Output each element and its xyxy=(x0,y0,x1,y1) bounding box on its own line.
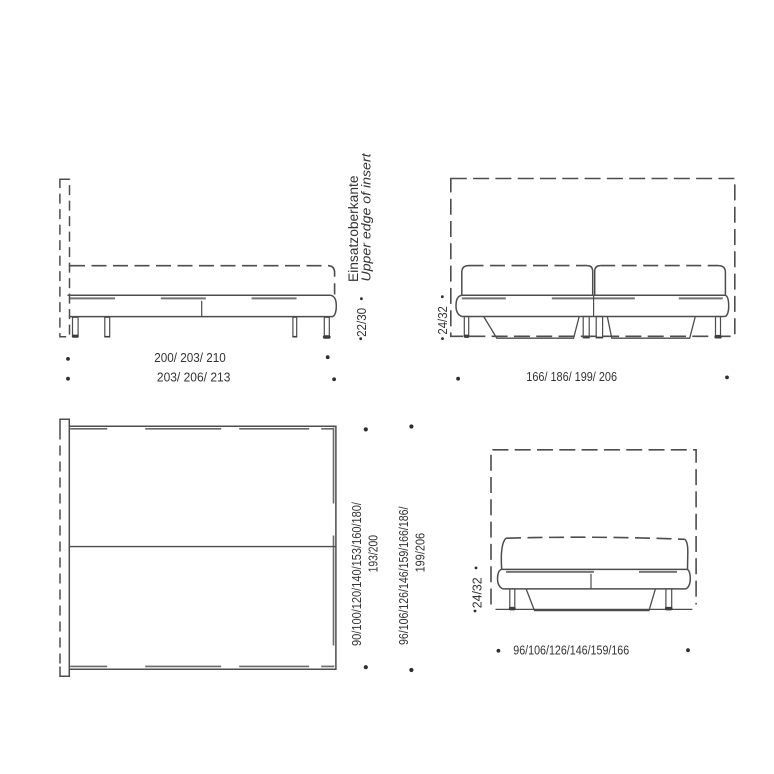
svg-text:193/200: 193/200 xyxy=(366,535,381,572)
svg-text:203/ 206/ 213: 203/ 206/ 213 xyxy=(157,369,231,384)
svg-text:Upper edge of insert: Upper edge of insert xyxy=(359,152,374,282)
svg-text:22/30: 22/30 xyxy=(354,308,369,337)
svg-text:199/206: 199/206 xyxy=(413,533,428,573)
svg-text:166/ 186/ 199/ 206: 166/ 186/ 199/ 206 xyxy=(526,369,617,384)
svg-text:96/106/126/146/159/166/186/: 96/106/126/146/159/166/186/ xyxy=(396,506,411,645)
svg-text:200/ 203/ 210: 200/ 203/ 210 xyxy=(154,350,226,365)
svg-text:24/32: 24/32 xyxy=(469,577,484,608)
svg-text:96/106/126/146/159/166: 96/106/126/146/159/166 xyxy=(513,643,629,658)
svg-text:24/32: 24/32 xyxy=(435,306,450,335)
svg-text:90/100/120/140/153/160/180/: 90/100/120/140/153/160/180/ xyxy=(349,502,364,646)
